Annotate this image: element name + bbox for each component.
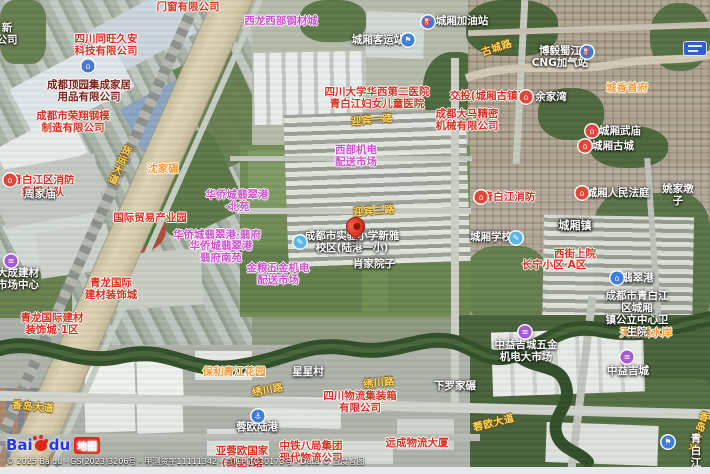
map-poi-label[interactable]: 西部机电 配送市场 — [335, 144, 377, 168]
school-icon[interactable]: ✎ — [294, 236, 307, 249]
map-poi-label[interactable]: 翡翠港 — [622, 272, 654, 284]
fire-station-icon[interactable]: ⌂ — [475, 191, 488, 204]
map-poi-label[interactable]: 保利青江花园 — [203, 366, 266, 378]
map-poi-label[interactable]: 华侨城翡翠港 ·北苑 — [206, 189, 269, 213]
map-poi-label[interactable]: 门窗有限公司 — [157, 1, 220, 13]
map-viewport[interactable]: 货运大道古城路迎宾一路迎宾二路绣川路绣川路蓉欧大道香岛大道香岛大道西龙西部钢材城… — [0, 0, 710, 467]
map-poi-label[interactable]: 西龙西部钢材城 — [244, 15, 318, 27]
map-poi-label[interactable]: 金粮五金机电 配送市场 — [247, 262, 310, 286]
pin-shadow — [350, 242, 362, 246]
map-poi-label[interactable]: 沈家碾 — [147, 163, 179, 175]
map-road-label: 绣川路 — [251, 382, 284, 399]
map-poi-label[interactable]: 青龙国际 建材装饰城 — [85, 277, 138, 301]
map-poi-label[interactable]: 姚家墩子 — [662, 183, 694, 207]
map-poi-label[interactable]: 远成物流大厦 — [386, 437, 449, 449]
map-poi-label[interactable]: 成都大马精密 机械有限公司 — [436, 108, 499, 132]
company-icon[interactable]: ⌂ — [82, 60, 95, 73]
court-icon[interactable]: ⌂ — [576, 187, 589, 200]
map-poi-label[interactable]: 城厢武庙 — [599, 125, 641, 137]
map-poi-label[interactable]: 下罗家碾 — [434, 380, 476, 392]
logo-text-bai: Bai — [6, 436, 33, 454]
map-poi-label[interactable]: 城厢人民法庭 — [587, 187, 650, 199]
fire-station-icon[interactable]: ⌂ — [4, 174, 17, 187]
map-poi-label[interactable]: 四川大学华西第二医院 青白江妇女儿童医院 — [325, 86, 430, 110]
map-road-label: 香岛大道 — [12, 400, 55, 415]
gas-station-icon[interactable]: ⛽ — [422, 16, 435, 29]
map-poi-label[interactable]: 中益吉城五金 机电大市场 — [495, 339, 558, 363]
market-icon[interactable]: ≡ — [5, 255, 18, 268]
pin-icon — [342, 213, 369, 240]
map-poi-label[interactable]: 四川物流集装箱 有限公司 — [323, 390, 397, 414]
market-icon[interactable]: ≡ — [621, 351, 634, 364]
map-road-label: 迎宾一路 — [351, 113, 394, 128]
map-poi-label[interactable]: 城香首府 — [606, 82, 648, 94]
bus-station-icon[interactable]: ⚑ — [402, 34, 415, 47]
map-poi-label[interactable]: 新 公司 — [0, 22, 18, 46]
map-poi-label[interactable]: 四川同旺久安 科技有限公司 — [75, 33, 138, 57]
map-poi-label[interactable]: 长宁小区·A区 — [522, 259, 587, 271]
school-icon[interactable]: ✎ — [510, 232, 523, 245]
map-poi-label[interactable]: 成都市青白江区城厢 镇公立中心卫生院 — [601, 290, 674, 338]
map-poi-label[interactable]: 青龙国际建材 装饰城·1区 — [21, 312, 84, 336]
map-poi-label[interactable]: 城厢加油站 — [436, 15, 489, 27]
map-attribution: © 2025 Baidu - GS(2023)3206号 - 甲测资字11111… — [6, 456, 365, 467]
map-poi-label[interactable]: 大成建材 市场中心 — [0, 267, 39, 291]
map-road-label: 蓉欧大道 — [472, 413, 516, 434]
building-icon[interactable]: ⌂ — [611, 272, 624, 285]
logo-map-badge: 地图 — [74, 437, 100, 454]
baidu-paw-icon — [35, 440, 47, 451]
scenic-icon[interactable]: ⌂ — [520, 91, 533, 104]
map-road-label: 绣川路 — [363, 376, 396, 391]
old-town-icon[interactable]: ⌂ — [579, 140, 592, 153]
map-poi-label[interactable]: 华侨城翡翠港 翡府南苑 — [190, 240, 253, 264]
market-icon[interactable]: ≡ — [519, 326, 532, 339]
map-poi-label[interactable]: 中益吉城 — [607, 365, 649, 377]
map-poi-label[interactable]: 城厢古城 — [592, 140, 634, 152]
stadium-icon[interactable]: ⚑ — [662, 436, 675, 449]
selected-location-pin[interactable] — [346, 217, 366, 247]
map-poi-label[interactable]: 余家湾 — [535, 91, 567, 103]
port-icon[interactable]: ⚓ — [252, 410, 265, 423]
map-poi-label[interactable]: 青白江 国际 — [689, 433, 703, 467]
map-poi-label[interactable]: 城厢镇 — [559, 220, 592, 233]
map-poi-label[interactable]: 成都市荣翔钢模 制造有限公司 — [36, 110, 110, 134]
temple-icon[interactable]: ⌂ — [586, 125, 599, 138]
baidu-maps-logo: Baidu 地图 — [6, 436, 100, 454]
map-poi-label[interactable]: 蓉欧陆港 — [236, 421, 278, 433]
map-road-label: 货运大道 — [104, 142, 132, 185]
map-poi-label[interactable]: 城厢客运站 — [352, 34, 405, 46]
map-poi-label[interactable]: 周家庙 — [24, 188, 56, 200]
map-poi-label[interactable]: 城厢学校 — [470, 231, 512, 243]
window-bottom-edge — [0, 467, 710, 474]
map-poi-label[interactable]: 成都顶园集成家居 用品有限公司 — [47, 79, 131, 103]
map-poi-label[interactable]: 星星村 — [292, 366, 324, 378]
logo-text-du: du — [49, 436, 70, 454]
map-poi-label[interactable]: 博毅蜀江 CNG加气站 — [532, 45, 589, 69]
cng-station-icon[interactable]: ⛽ — [581, 46, 594, 59]
map-poi-label[interactable]: 青白江消防 — [483, 191, 536, 203]
map-road-label: 古城路 — [480, 38, 514, 59]
map-poi-label[interactable]: 交投(城厢古镇) — [450, 90, 523, 102]
map-poi-label[interactable]: 国际贸易产业园 — [113, 212, 187, 224]
map-poi-label[interactable]: 肖家院子 — [353, 258, 395, 270]
